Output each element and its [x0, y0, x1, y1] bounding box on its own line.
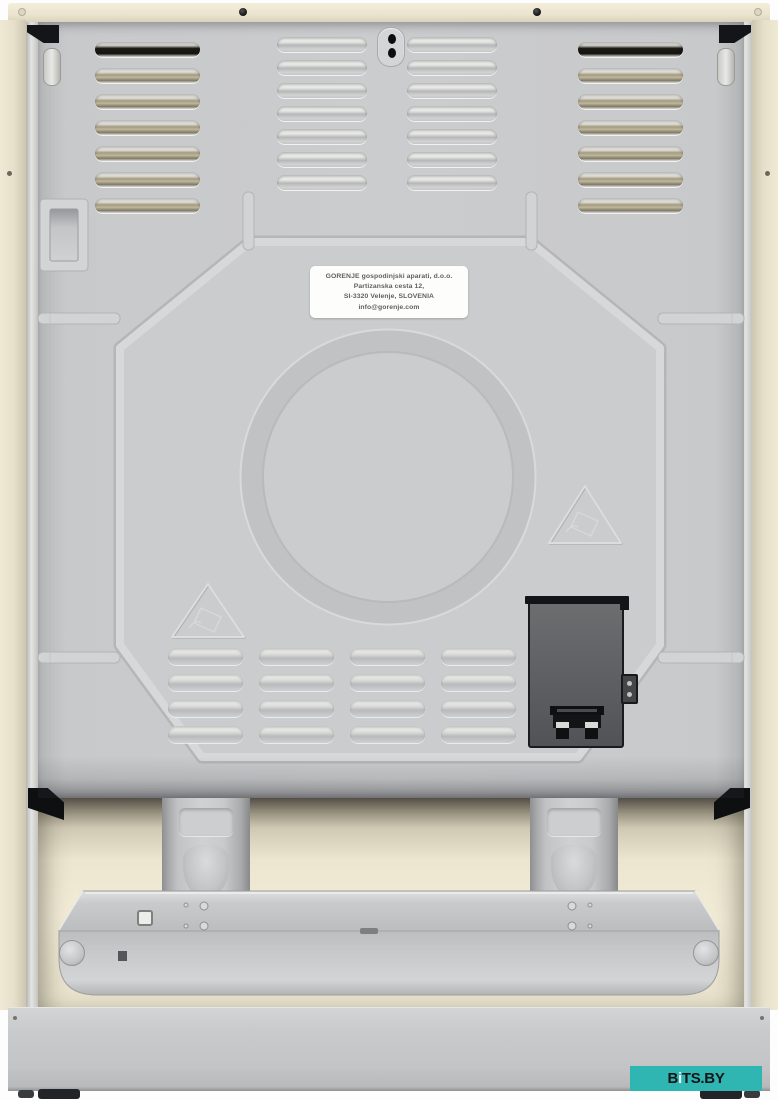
vent-slot: [259, 726, 334, 743]
bracket-hole: [627, 692, 632, 697]
junction-box: [528, 598, 624, 748]
vent-slot: [277, 83, 367, 98]
manufacturer-label: GORENJE gospodinjski aparati, d.o.o. Par…: [310, 266, 468, 318]
vent-slot: [95, 172, 200, 187]
vent-slot: [277, 175, 367, 190]
vent-slot: [95, 120, 200, 135]
bracket-hole: [627, 681, 632, 686]
screw-icon: [388, 48, 396, 58]
vent-slot: [168, 648, 243, 665]
vent-slot: [578, 94, 683, 109]
vent-slot: [578, 68, 683, 83]
vent-slot: [407, 37, 497, 52]
vent-slot: [350, 674, 425, 691]
mounting-hook-right: [717, 48, 735, 86]
vent-slot: [168, 726, 243, 743]
vent-slot: [277, 152, 367, 167]
vent-group-top-right: [578, 42, 683, 213]
vent-slot: [95, 94, 200, 109]
vent-slot: [350, 648, 425, 665]
vent-slot: [259, 700, 334, 717]
vent-slot: [350, 700, 425, 717]
foot-left: [38, 1089, 80, 1099]
vent-slot: [277, 129, 367, 144]
vent-slot: [407, 129, 497, 144]
vent-slot: [441, 648, 516, 665]
foot-tab-left: [18, 1090, 34, 1098]
vent-slot: [277, 60, 367, 75]
cable-clamp: [550, 706, 604, 742]
vent-slot: [407, 60, 497, 75]
tray-notch: [360, 928, 378, 934]
screw-icon: [760, 1016, 764, 1020]
watermark-text: B: [667, 1070, 678, 1087]
clamp-leg: [585, 728, 598, 739]
vent-slot: [259, 648, 334, 665]
vent-slot: [407, 106, 497, 121]
junction-box-rail: [525, 596, 629, 604]
vent-group-center-right: [407, 37, 497, 190]
mounting-hook-left: [43, 48, 61, 86]
foot-tab-right: [744, 1090, 760, 1098]
label-line-2: Partizanska cesta 12,: [310, 282, 468, 292]
vent-group-top-left: [95, 42, 200, 213]
vent-slot: [407, 175, 497, 190]
screw-icon: [13, 1016, 17, 1020]
vent-slot: [441, 674, 516, 691]
vent-slot: [277, 37, 367, 52]
vent-slot: [95, 68, 200, 83]
vent-slot: [578, 42, 683, 57]
vent-slot: [168, 674, 243, 691]
vent-slot: [95, 198, 200, 213]
label-line-4: info@gorenje.com: [310, 303, 468, 313]
label-line-1: GORENJE gospodinjski aparati, d.o.o.: [310, 272, 468, 282]
vent-slot: [578, 146, 683, 161]
junction-box-rail-step: [620, 600, 629, 610]
vent-slot: [407, 83, 497, 98]
clamp-leg: [556, 728, 569, 739]
junction-box-bracket: [621, 674, 638, 704]
drawer-tray: [59, 891, 719, 995]
vent-slot: [578, 172, 683, 187]
vent-slot: [578, 198, 683, 213]
vent-slot: [95, 42, 200, 57]
tray-small-hole: [118, 951, 127, 961]
vent-slot: [168, 700, 243, 717]
vent-slot: [407, 152, 497, 167]
vent-slot: [259, 674, 334, 691]
vent-slot: [441, 726, 516, 743]
label-line-3: SI-3320 Velenje, SLOVENIA: [310, 292, 468, 302]
oval-fixing-plate: [377, 27, 405, 67]
vent-slot: [350, 726, 425, 743]
vent-slot: [578, 120, 683, 135]
panel-bottom-shade: [38, 756, 744, 798]
vent-slot: [441, 700, 516, 717]
vent-slot: [95, 146, 200, 161]
service-cutout: [40, 199, 88, 271]
watermark-banner: BiTS.BY: [630, 1066, 762, 1091]
watermark-text: TS.BY: [682, 1070, 725, 1087]
appliance-rear-photo: GORENJE gospodinjski aparati, d.o.o. Par…: [0, 0, 778, 1100]
screw-icon: [388, 34, 396, 44]
clamp-bar: [550, 706, 604, 715]
vent-group-center-left: [277, 37, 367, 190]
vent-slot: [277, 106, 367, 121]
tray-square-hole: [138, 911, 152, 925]
vent-group-lower: [168, 648, 516, 743]
